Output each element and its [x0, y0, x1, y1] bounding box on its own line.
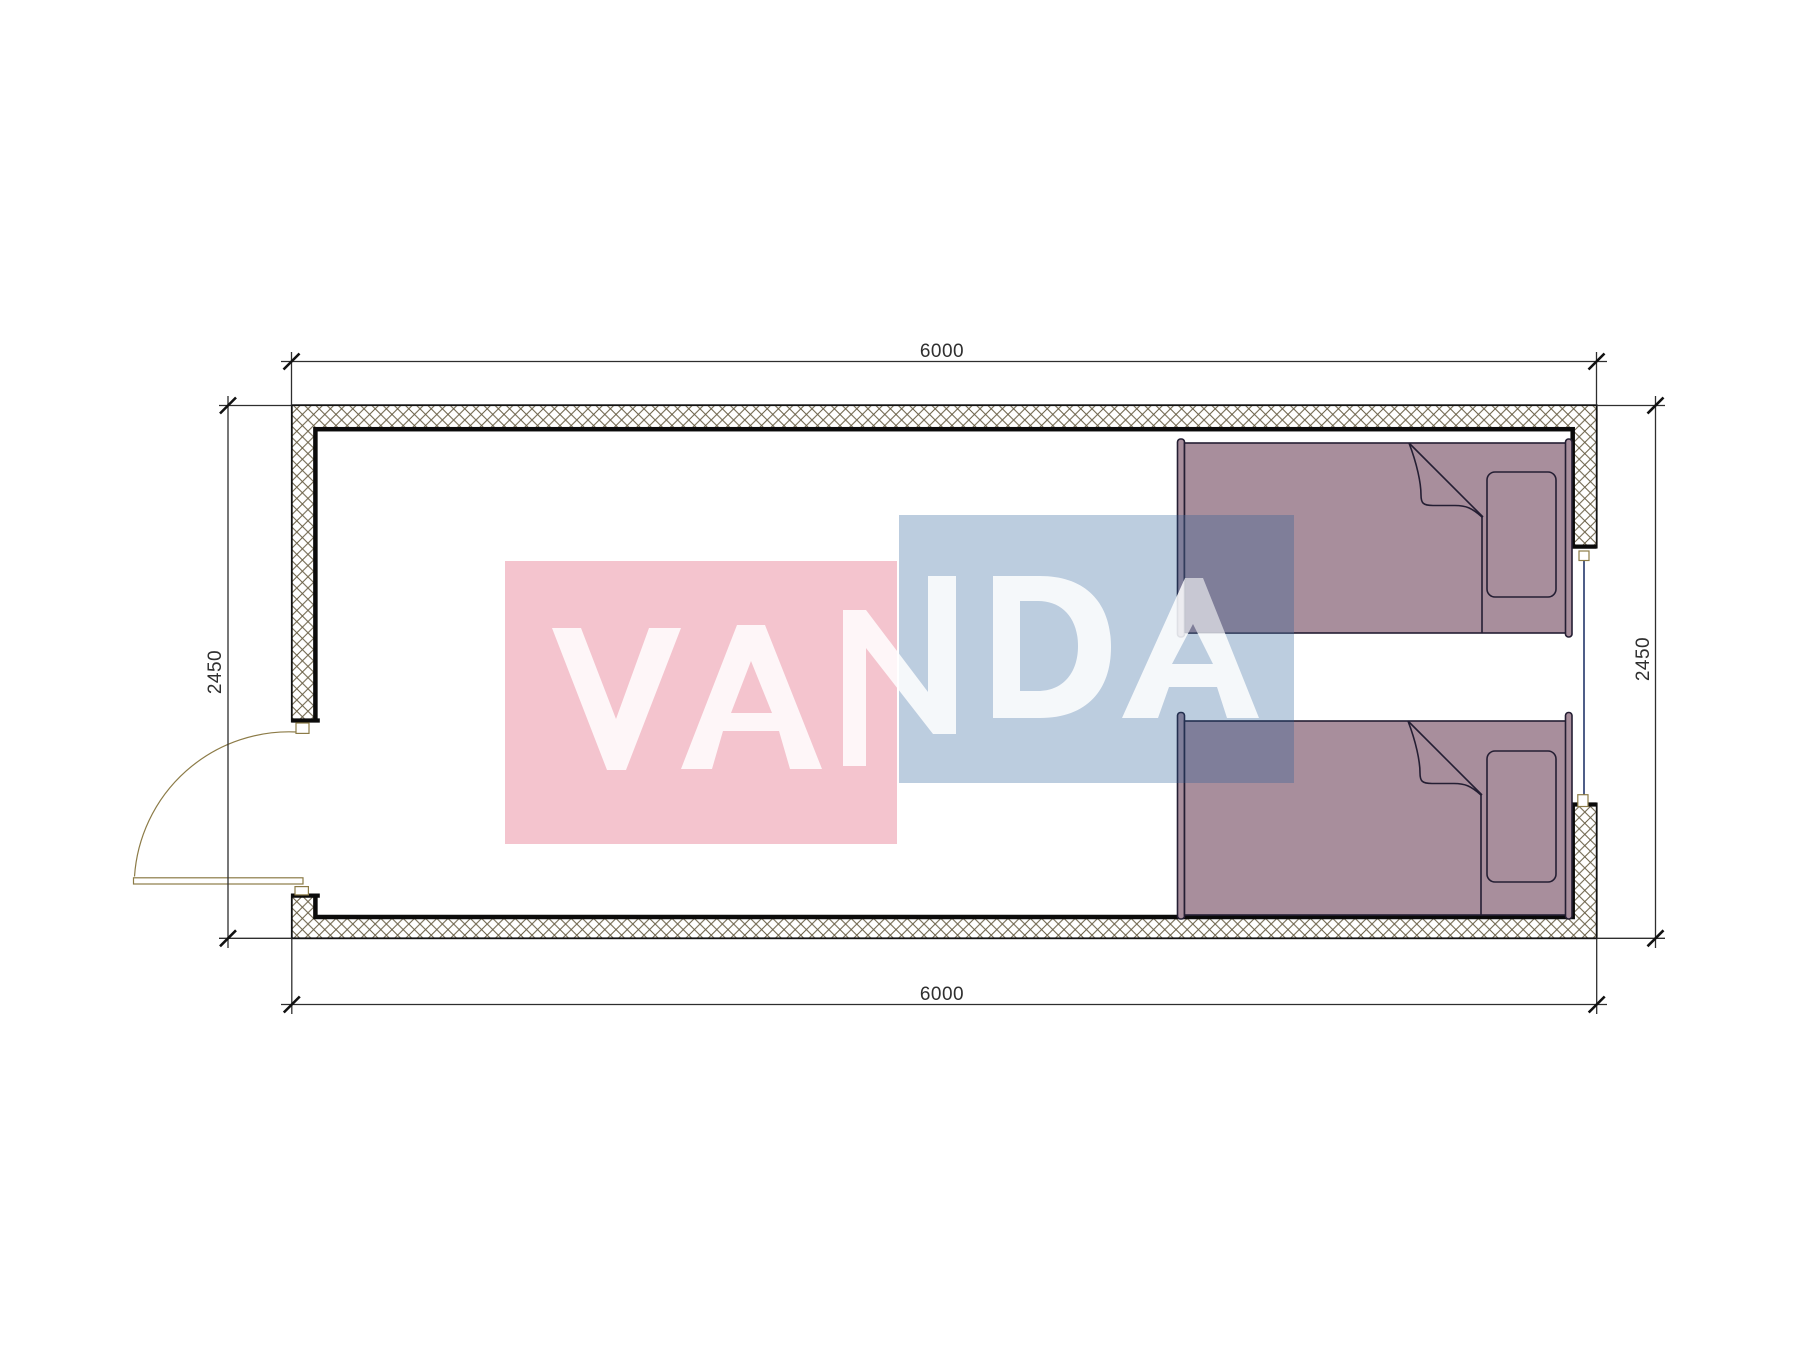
svg-text:2450: 2450: [1633, 637, 1654, 681]
svg-text:2450: 2450: [205, 650, 226, 694]
svg-text:6000: 6000: [920, 341, 964, 362]
svg-text:6000: 6000: [920, 984, 964, 1005]
